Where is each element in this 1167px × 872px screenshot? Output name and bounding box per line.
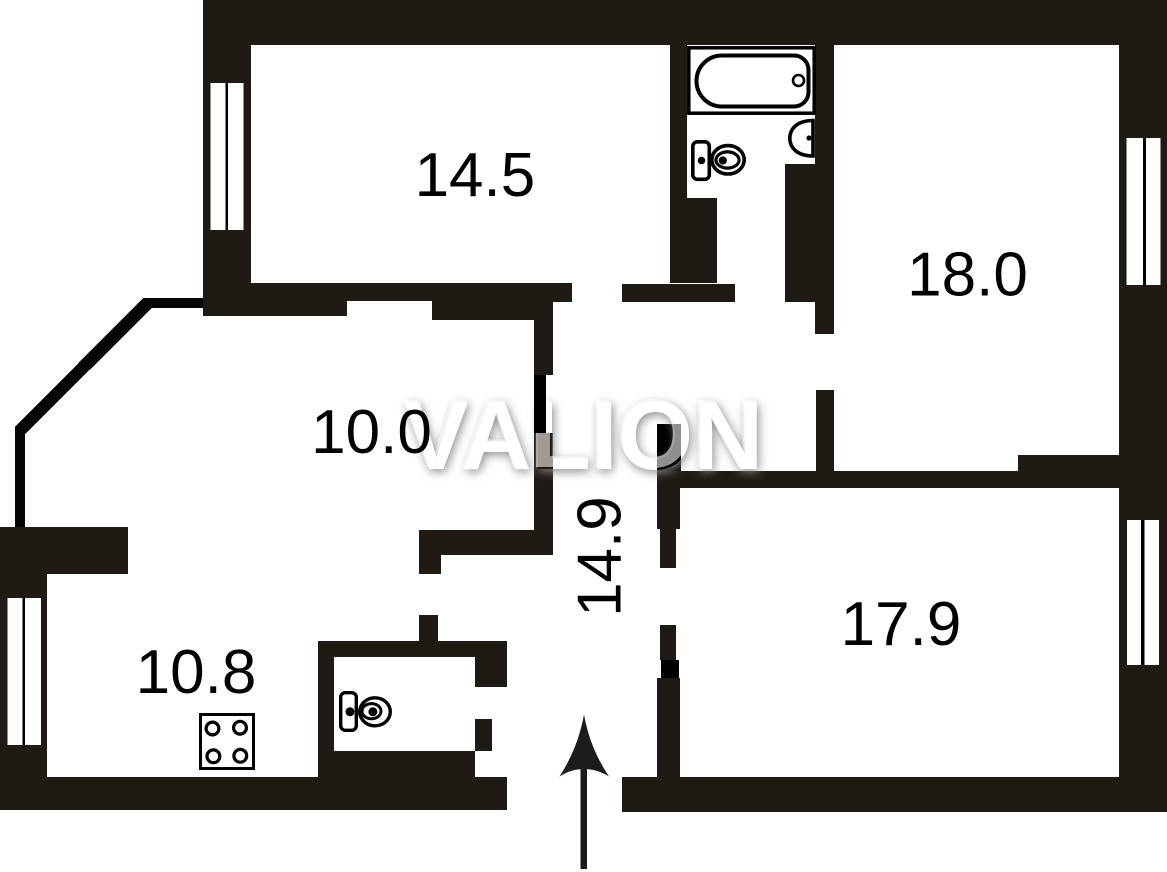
svg-text:10.8: 10.8	[136, 638, 257, 707]
svg-text:10.0: 10.0	[311, 398, 432, 467]
svg-text:VALION: VALION	[402, 379, 761, 488]
svg-text:14.9: 14.9	[566, 496, 635, 617]
svg-text:17.9: 17.9	[841, 590, 962, 659]
svg-text:14.5: 14.5	[415, 141, 536, 210]
svg-text:18.0: 18.0	[907, 241, 1028, 310]
